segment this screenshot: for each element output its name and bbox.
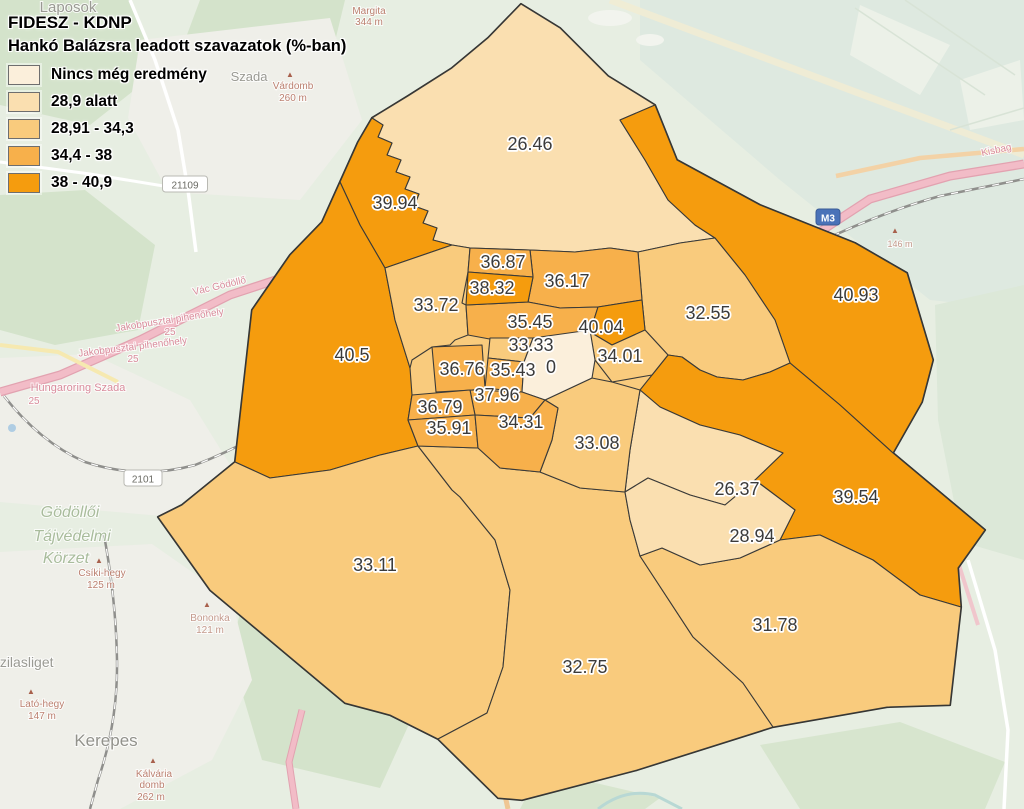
basemap-label: 25 [28,396,40,407]
basemap-label: 344 m [355,17,383,28]
district-value-label: 40.93 [833,285,878,305]
road-shield-label: 21109 [171,181,199,192]
district-value-label: 0 [546,357,556,377]
district-value-label: 36.79 [417,397,462,417]
basemap-label: 146 m [887,239,912,249]
district-value-label: 39.54 [833,487,878,507]
basemap-label: Gödöllői [41,504,100,521]
district-value-label: 33.08 [574,433,619,453]
district-value-label: 34.01 [597,346,642,366]
basemap-label: Margita [352,6,386,17]
basemap-label: 262 m [137,792,165,803]
district-value-label: 31.78 [752,615,797,635]
district-value-label: 39.94 [372,193,417,213]
peak-icon: ▲ [203,600,211,609]
district-value-label: 40.5 [334,345,369,365]
peak-icon: ▲ [286,70,294,79]
basemap-label: 25 [127,354,139,365]
basemap-label: domb [139,780,164,791]
peak-icon: ▲ [891,226,899,235]
basemap-label: Csíki-hegy [78,568,125,579]
district-value-label: 26.37 [714,479,759,499]
motorway-shield: M3 [816,209,840,225]
district-value-label: 37.96 [474,385,519,405]
peak-icon: ▲ [149,756,157,765]
district-value-label: 32.75 [562,657,607,677]
basemap-label: 147 m [28,711,56,722]
basemap-label: 260 m [279,93,307,104]
peak-icon: ▲ [95,556,103,565]
basemap-label: Hungaroring Szada [31,382,127,394]
district-value-label: 26.46 [507,134,552,154]
basemap-label: Kerepes [74,731,137,750]
district-value-label: 28.94 [729,526,774,546]
district-value-label: 33.72 [413,295,458,315]
district-value-label: 38.32 [469,278,514,298]
basemap-label: Tájvédelmi [33,528,111,545]
basemap-label: 121 m [196,625,224,636]
basemap-label: Kálvária [136,769,173,780]
district-value-label: 36.17 [544,271,589,291]
district-value-label: 36.76 [439,359,484,379]
road-shield: 21109 [163,176,208,192]
basemap-label: Várdomb [273,81,314,92]
map-canvas: ▲▲▲▲▲▲211092101M3LaposokMargita344 mSzad… [0,0,1024,809]
district-value-label: 35.43 [490,360,535,380]
road-shield-label: M3 [821,214,835,225]
peak-icon: ▲ [27,687,35,696]
district-value-label: 35.45 [507,312,552,332]
road-shield-label: 2101 [132,475,155,486]
map-viewport: ▲▲▲▲▲▲211092101M3LaposokMargita344 mSzad… [0,0,1024,809]
basemap-label: Körzet [43,550,90,567]
district-value-label: 32.55 [685,303,730,323]
basemap-label: Szilasliget [0,654,54,670]
district-value-label: 35.91 [426,418,471,438]
road-shield: 2101 [124,470,162,486]
basemap-label: Szada [231,69,269,84]
district-value-label: 34.31 [498,412,543,432]
basemap-label: Lató-hegy [20,699,64,710]
district-value-label: 40.04 [578,317,623,337]
basemap-label: Laposok [40,0,97,16]
basemap-label: Bononka [190,613,230,624]
district-value-label: 36.87 [480,252,525,272]
district-value-label: 33.11 [353,555,397,575]
district-value-label: 33.33 [508,335,553,355]
basemap-label: 125 m [87,580,115,591]
